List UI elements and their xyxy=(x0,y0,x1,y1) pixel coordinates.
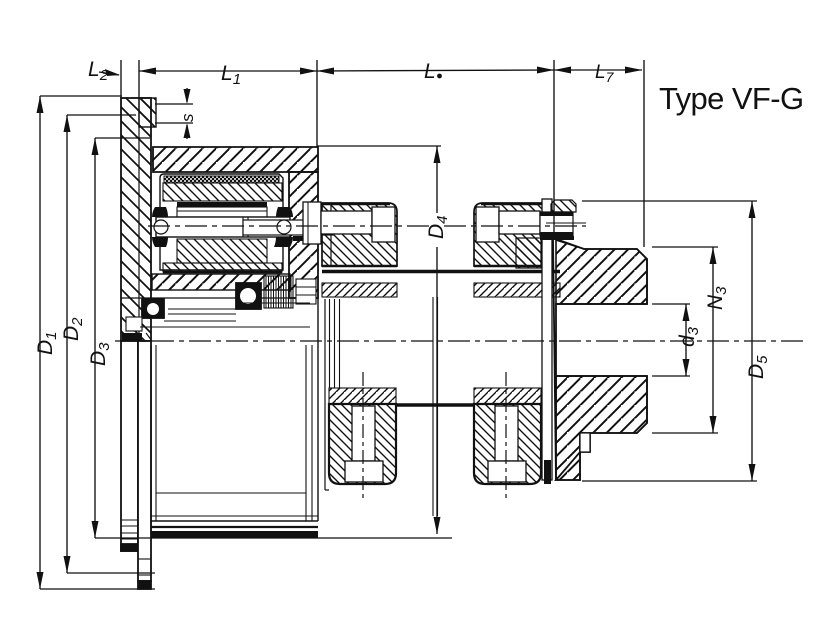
svg-text:Type VF-G: Type VF-G xyxy=(659,81,803,116)
svg-text:L: L xyxy=(424,60,436,83)
svg-text:s: s xyxy=(178,113,197,122)
